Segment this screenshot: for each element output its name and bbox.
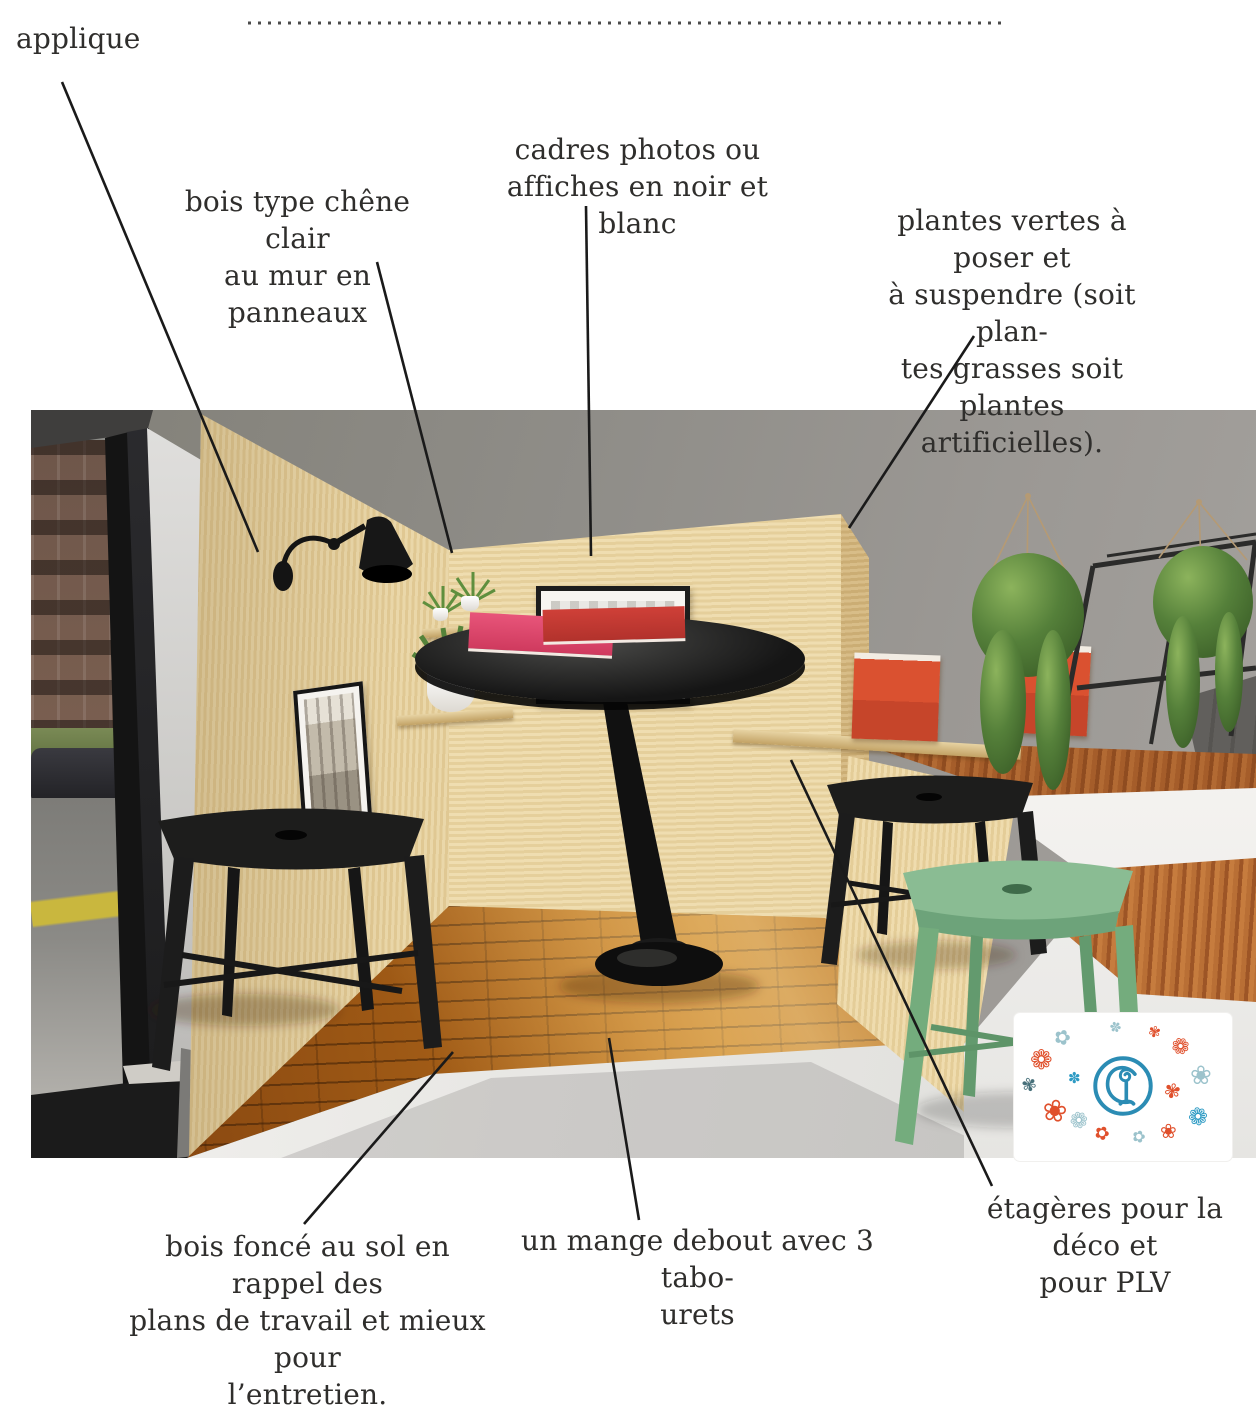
flower-icon: ✽	[1108, 1019, 1124, 1036]
label-applique: applique	[16, 20, 156, 57]
table-stem	[595, 702, 723, 986]
label-frames: cadres photos ou affiches en noir et bla…	[480, 131, 795, 242]
label-plants: plantes vertes à poser et à suspendre (s…	[862, 202, 1162, 461]
design-board: EW664FX	[0, 0, 1256, 1408]
wall-lamp	[273, 516, 413, 591]
flower-icon: ❀	[1160, 1121, 1177, 1141]
label-shelves: étagères pour la déco et pour PLV	[950, 1190, 1256, 1301]
flower-icon: ❁	[1186, 1104, 1209, 1131]
black-stool-left	[136, 795, 446, 1085]
flower-icon: ✾	[1147, 1024, 1162, 1041]
flower-icon: ✾	[1020, 1075, 1039, 1096]
label-floor: bois foncé au sol en rappel des plans de…	[120, 1228, 495, 1408]
flower-icon: ❁	[1169, 1035, 1193, 1062]
flower-icon: ✾	[1162, 1079, 1183, 1102]
logo-monogram-icon	[1090, 1053, 1156, 1119]
flower-icon: ✿	[1091, 1123, 1112, 1146]
flower-icon: ✿	[1051, 1025, 1074, 1050]
flower-icon: ❁	[1068, 1109, 1091, 1134]
flower-icon: ❀	[1190, 1063, 1212, 1089]
studio-logo-card: ❁ ✿ ✾ ❀ ✽ ❁ ✿ ❁ ❀ ✾ ❁ ❀ ✿ ✽ ✾	[1014, 1013, 1232, 1161]
flower-icon: ❀	[1040, 1095, 1070, 1129]
flower-icon: ✽	[1068, 1071, 1081, 1086]
flower-icon: ❁	[1030, 1047, 1053, 1074]
label-table: un mange debout avec 3 tabo- urets	[510, 1222, 885, 1333]
flower-icon: ✿	[1130, 1127, 1148, 1146]
red-book-on-table	[543, 606, 686, 645]
label-wall-wood: bois type chêne clair au mur en panneaux	[155, 183, 440, 331]
hanging-plant	[972, 493, 1084, 790]
